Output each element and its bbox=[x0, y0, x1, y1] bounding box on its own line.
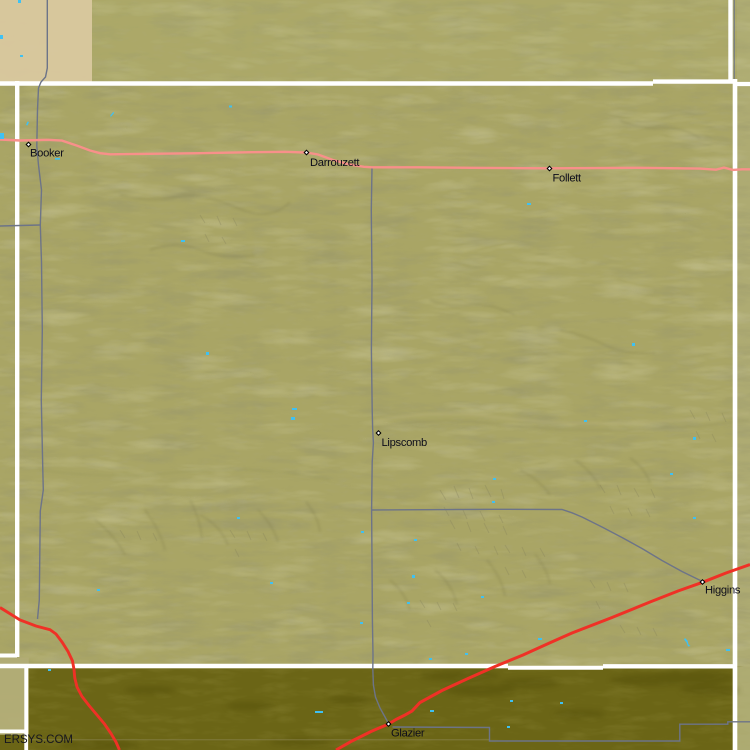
svg-text:Lipscomb: Lipscomb bbox=[382, 437, 428, 449]
svg-text:Higgins: Higgins bbox=[705, 585, 741, 597]
svg-text:Glazier: Glazier bbox=[391, 728, 425, 740]
svg-text:Follett: Follett bbox=[553, 173, 583, 185]
svg-text:ERSYS.COM: ERSYS.COM bbox=[4, 734, 73, 746]
svg-text:Booker: Booker bbox=[30, 148, 64, 160]
svg-text:Darrouzett: Darrouzett bbox=[310, 157, 360, 169]
